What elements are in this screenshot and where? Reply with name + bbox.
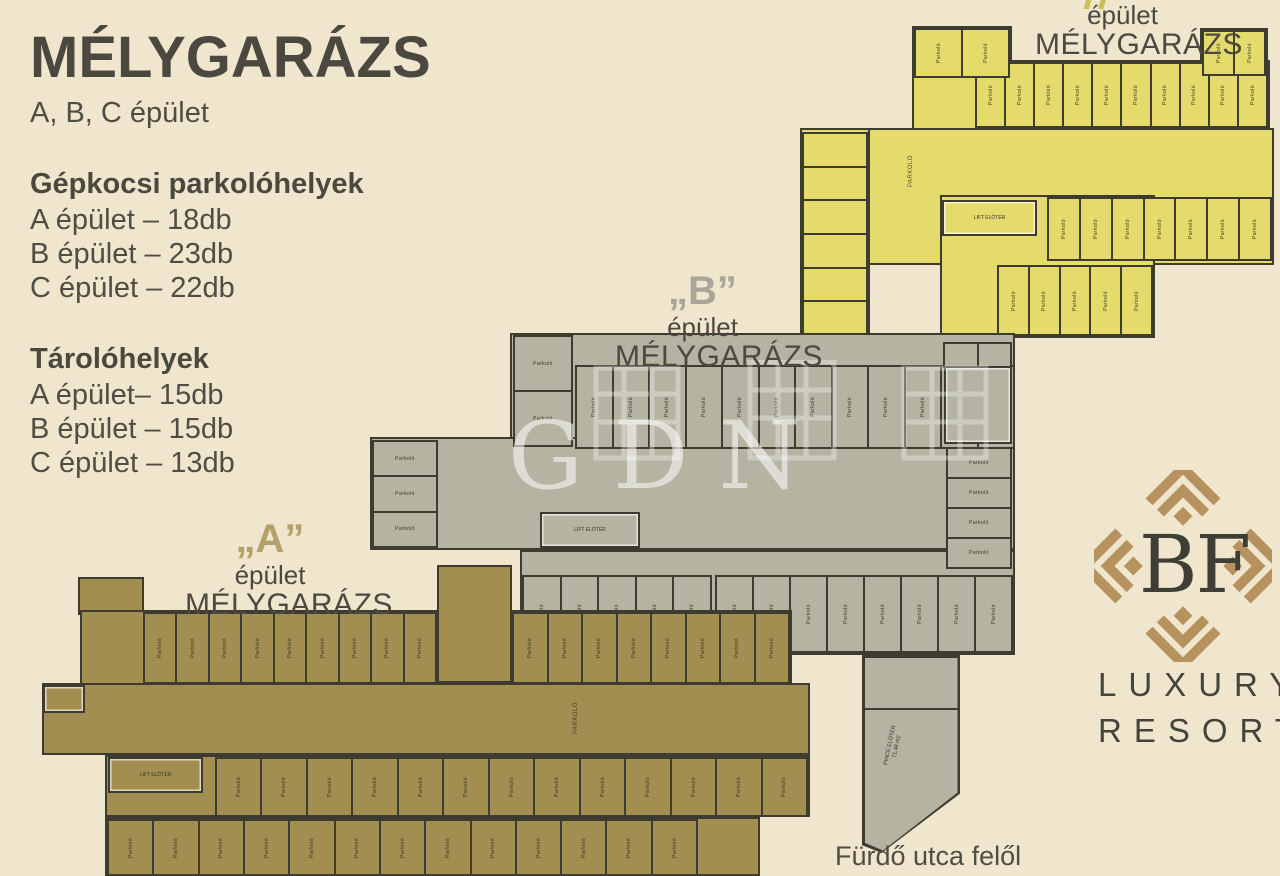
stall-label: Parkoló — [969, 550, 989, 556]
stall-label: Parkoló — [1249, 85, 1255, 105]
stall-label: Parkoló — [327, 777, 333, 797]
stall-label: Parkoló — [1191, 85, 1197, 105]
parking-strip-b: ParkolóParkolóParkolóParkoló — [946, 447, 1012, 569]
parking-stall: Parkoló — [562, 821, 607, 874]
building-b-line2: MÉLYGARÁZS — [615, 341, 790, 373]
parking-stall: Parkoló — [583, 614, 618, 682]
stall-label: Parkoló — [1103, 291, 1109, 311]
storage-list: A épület– 15dbB épület – 15dbC épület – … — [30, 378, 490, 480]
parking-stall: Parkoló — [372, 614, 404, 682]
building-a-line1: épület — [185, 562, 355, 589]
stall-label: Parkoló — [319, 638, 325, 658]
stall-label: Parkoló — [1246, 43, 1252, 63]
stall-label: Parkoló — [309, 838, 315, 858]
stall-label: Parkoló — [173, 838, 179, 858]
subtitle: A, B, C épület — [30, 97, 490, 130]
parking-stall — [804, 168, 866, 202]
parking-stall: Parkoló — [948, 479, 1010, 509]
parking-stall: Parkoló — [1081, 199, 1113, 259]
parking-strip-c — [802, 132, 868, 336]
stall-label: Parkoló — [384, 638, 390, 658]
stall-label: Parkoló — [1252, 219, 1258, 239]
parking-stall — [804, 134, 866, 168]
lift-label: LIFT ELŐTÉR — [974, 215, 1006, 221]
core-room-b: LIFT ELŐTÉR — [540, 512, 640, 548]
stall-label: Parkoló — [400, 838, 406, 858]
stall-label: Parkoló — [599, 777, 605, 797]
parking-stall: Parkoló — [399, 759, 444, 815]
parking-stall: Parkoló — [472, 821, 517, 874]
stall-label: Parkoló — [1010, 291, 1016, 311]
stall-label: Parkoló — [1134, 291, 1140, 311]
parking-stall: Parkoló — [262, 759, 307, 815]
logo-luxury-text: LUXURY — [1098, 666, 1280, 704]
stall-label: Parkoló — [354, 838, 360, 858]
plan-label-building-c: épület MÉLYGARÁZS — [1035, 2, 1210, 61]
parking-strip-a: ParkolóParkolóParkolóParkolóParkolóParko… — [215, 757, 808, 817]
gdn-watermark: GDN — [508, 402, 831, 511]
stall-label: Parkoló — [157, 638, 163, 658]
stall-label: Parkoló — [264, 838, 270, 858]
stall-label: Parkoló — [982, 43, 988, 63]
parking-stall: Parkoló — [308, 759, 353, 815]
info-line: A épület– 15db — [30, 378, 490, 412]
stall-label: Parkoló — [463, 777, 469, 797]
stall-label: Parkoló — [1188, 219, 1194, 239]
parking-stall: Parkoló — [353, 759, 398, 815]
parking-stall: Parkoló — [549, 614, 584, 682]
parking-stall: Parkoló — [939, 577, 976, 651]
stall-label: Parkoló — [190, 638, 196, 658]
parking-stall: Parkoló — [245, 821, 290, 874]
core-room-a: LIFT ELŐTÉR — [108, 757, 203, 793]
parking-stall: Parkoló — [672, 759, 717, 815]
parking-stall: Parkoló — [652, 614, 687, 682]
stall-label: Parkoló — [287, 638, 293, 658]
stall-label: Parkoló — [1072, 291, 1078, 311]
garage-area-a — [437, 565, 512, 683]
parking-stall: Parkoló — [976, 577, 1011, 651]
parking-stall: Parkoló — [1176, 199, 1208, 259]
parking-stall: Parkoló — [275, 614, 307, 682]
parking-stall — [804, 269, 866, 303]
info-line: A épület – 18db — [30, 203, 490, 237]
parking-stall: Parkoló — [200, 821, 245, 874]
parking-strip-c: ParkolóParkolóParkolóParkolóParkoló — [997, 265, 1153, 336]
stall-label: Parkoló — [395, 526, 415, 532]
stall-label: Parkoló — [1061, 219, 1067, 239]
stall-label: Parkoló — [916, 604, 922, 624]
stall-label: Parkoló — [236, 777, 242, 797]
stall-label: Parkoló — [969, 490, 989, 496]
stall-label: Parkoló — [631, 638, 637, 658]
stall-label: Parkoló — [596, 638, 602, 658]
parking-stall: Parkoló — [902, 577, 939, 651]
parking-strip-a: ParkolóParkolóParkolóParkolóParkolóParko… — [107, 819, 698, 876]
parking-stall: Parkoló — [963, 30, 1008, 76]
garage-plan-poster: ParkolóParkolóParkolóParkolóParkolóParko… — [0, 0, 1280, 876]
stall-label: Parkoló — [626, 838, 632, 858]
stall-label: Parkoló — [1157, 219, 1163, 239]
parking-stall: Parkoló — [1035, 64, 1064, 126]
parking-heading: Gépkocsi parkolóhelyek — [30, 168, 490, 201]
building-b-quote: „B” — [615, 270, 790, 312]
parking-stall: Parkoló — [581, 759, 626, 815]
parking-stall: Parkoló — [687, 614, 722, 682]
ramp-label: PINCE ELŐTÉR71,48 m2 — [883, 724, 905, 766]
info-line: B épület – 23db — [30, 237, 490, 271]
parking-stall: Parkoló — [1030, 267, 1061, 334]
stall-label: Parkoló — [781, 777, 787, 797]
stall-label: Parkoló — [990, 604, 996, 624]
stall-label: Parkoló — [1162, 85, 1168, 105]
parking-stall: Parkoló — [1091, 267, 1122, 334]
parking-stall: Parkoló — [1093, 64, 1122, 126]
parking-stall: Parkoló — [618, 614, 653, 682]
parking-stall: Parkoló — [517, 821, 562, 874]
building-b-line1: épület — [615, 314, 790, 341]
cellar-ramp-floor: PINCE ELŐTÉR71,48 m2 — [865, 658, 958, 851]
parking-stall: Parkoló — [535, 759, 580, 815]
stall-label: Parkoló — [372, 777, 378, 797]
stall-label: Parkoló — [1220, 219, 1226, 239]
aisle-label-a: PARKOLÓ — [573, 702, 579, 734]
stall-label: Parkoló — [953, 604, 959, 624]
parking-stall: Parkoló — [177, 614, 209, 682]
core-room-c: LIFT ELŐTÉR — [942, 200, 1037, 236]
info-panel: MÉLYGARÁZS A, B, C épület Gépkocsi parko… — [30, 28, 490, 480]
stall-label: Parkoló — [671, 838, 677, 858]
parking-stall: Parkoló — [307, 614, 339, 682]
stall-label: Parkoló — [935, 43, 941, 63]
parking-stall: Parkoló — [1113, 199, 1145, 259]
parking-stall: Parkoló — [999, 267, 1030, 334]
parking-stall: Parkoló — [1240, 199, 1270, 259]
logo-resort-text: RESORT — [1098, 712, 1280, 750]
parking-stall: Parkoló — [1064, 64, 1093, 126]
stall-label: Parkoló — [769, 638, 775, 658]
stall-label: Parkoló — [509, 777, 515, 797]
stall-label: Parkoló — [700, 638, 706, 658]
info-line: C épület – 22db — [30, 271, 490, 305]
stall-label: Parkoló — [879, 604, 885, 624]
stall-label: Parkoló — [1125, 219, 1131, 239]
lift-label: LIFT ELŐTÉR — [140, 772, 172, 778]
info-line: B épület – 15db — [30, 412, 490, 446]
stall-label: Parkoló — [554, 777, 560, 797]
parking-stall — [804, 235, 866, 269]
parking-stall: Parkoló — [154, 821, 199, 874]
parking-strip-a: ParkolóParkolóParkolóParkolóParkolóParko… — [512, 612, 790, 684]
bf-logo-monogram: BF — [1124, 518, 1264, 611]
parking-stall: Parkoló — [515, 337, 571, 392]
stall-label: Parkoló — [1075, 85, 1081, 105]
parking-stall: Parkoló — [336, 821, 381, 874]
stall-label: Parkoló — [842, 604, 848, 624]
parking-stall: Parkoló — [1145, 199, 1177, 259]
parking-stall: Parkoló — [756, 614, 789, 682]
parking-stall: Parkoló — [948, 539, 1010, 567]
stall-label: Parkoló — [581, 838, 587, 858]
parking-stall: Parkoló — [374, 513, 436, 546]
parking-stall: Parkoló — [916, 30, 963, 76]
building-a-quote: „A” — [185, 518, 355, 560]
lift-label: LIFT ELŐTÉR — [574, 527, 606, 533]
stall-label: Parkoló — [1104, 85, 1110, 105]
stall-label: Parkoló — [562, 638, 568, 658]
stall-label: Parkoló — [1041, 291, 1047, 311]
parking-strip-a: ParkolóParkolóParkolóParkolóParkolóParko… — [143, 612, 437, 684]
garage-area-a — [42, 683, 810, 755]
building-a-line2: MÉLYGARÁZS — [185, 589, 355, 621]
parking-stall — [804, 302, 866, 334]
street-label: Fürdő utca felől — [835, 841, 1021, 872]
stall-label: Parkoló — [1220, 85, 1226, 105]
stall-label: Parkoló — [218, 838, 224, 858]
stall-label: Parkoló — [417, 638, 423, 658]
ramp-divider — [865, 708, 958, 711]
parking-stall: Parkoló — [721, 614, 756, 682]
stall-label: Parkoló — [665, 638, 671, 658]
parking-list: A épület – 18dbB épület – 23dbC épület –… — [30, 203, 490, 305]
cellar-ramp: PINCE ELŐTÉR71,48 m2 — [862, 655, 960, 853]
info-line: C épület – 13db — [30, 446, 490, 480]
parking-stall: Parkoló — [763, 759, 806, 815]
stall-label: Parkoló — [535, 838, 541, 858]
parking-stall: Parkoló — [405, 614, 435, 682]
parking-stall: Parkoló — [1049, 199, 1081, 259]
parking-stall: Parkoló — [381, 821, 426, 874]
page-title: MÉLYGARÁZS — [30, 28, 490, 89]
parking-strip-c: ParkolóParkoló — [914, 28, 1010, 78]
stall-label: Parkoló — [533, 361, 553, 367]
stall-label: Parkoló — [395, 491, 415, 497]
parking-stall: Parkoló — [626, 759, 671, 815]
parking-stall: Parkoló — [1152, 64, 1181, 126]
parking-strip-c: ParkolóParkolóParkolóParkolóParkolóParko… — [1047, 197, 1272, 261]
parking-stall: Parkoló — [791, 577, 828, 651]
stall-label: Parkoló — [969, 520, 989, 526]
building-c-line2: MÉLYGARÁZS — [1035, 29, 1210, 61]
parking-stall: Parkoló — [374, 477, 436, 512]
parking-stall: Parkoló — [514, 614, 549, 682]
core-room-a — [43, 685, 85, 713]
storage-heading: Tárolóhelyek — [30, 343, 490, 376]
stall-label: Parkoló — [805, 604, 811, 624]
parking-stall: Parkoló — [948, 509, 1010, 539]
parking-stall: Parkoló — [490, 759, 535, 815]
stall-label: Parkoló — [490, 838, 496, 858]
parking-stall: Parkoló — [1122, 64, 1151, 126]
plan-label-building-a: „A” épület MÉLYGARÁZS — [185, 518, 355, 621]
parking-stall — [804, 201, 866, 235]
parking-stall: Parkoló — [145, 614, 177, 682]
aisle-label-c: PARKOLÓ — [908, 155, 914, 187]
parking-stall: Parkoló — [653, 821, 696, 874]
stall-label: Parkoló — [734, 638, 740, 658]
stall-label: Parkoló — [418, 777, 424, 797]
parking-stall: Parkoló — [828, 577, 865, 651]
parking-stall: Parkoló — [217, 759, 262, 815]
stall-label: Parkoló — [736, 777, 742, 797]
building-c-line1: épület — [1035, 2, 1210, 29]
stall-label: Parkoló — [1017, 85, 1023, 105]
stall-label: Parkoló — [1046, 85, 1052, 105]
stall-label: Parkoló — [1093, 219, 1099, 239]
parking-stall: Parkoló — [607, 821, 652, 874]
parking-stall: Parkoló — [865, 577, 902, 651]
parking-stall: Parkoló — [1122, 267, 1151, 334]
parking-stall: Parkoló — [340, 614, 372, 682]
stall-label: Parkoló — [527, 638, 533, 658]
stall-label: Parkoló — [352, 638, 358, 658]
parking-stall: Parkoló — [717, 759, 762, 815]
stall-label: Parkoló — [281, 777, 287, 797]
parking-stall: Parkoló — [444, 759, 489, 815]
stall-label: Parkoló — [1133, 85, 1139, 105]
stall-label: Parkoló — [988, 85, 994, 105]
parking-stall: Parkoló — [242, 614, 274, 682]
stall-label: Parkoló — [645, 777, 651, 797]
parking-stall: Parkoló — [1061, 267, 1092, 334]
stall-label: Parkoló — [128, 838, 134, 858]
plan-label-building-b: „B” épület MÉLYGARÁZS — [615, 270, 790, 373]
stall-label: Parkoló — [690, 777, 696, 797]
parking-stall: Parkoló — [1006, 64, 1035, 126]
parking-stall: Parkoló — [109, 821, 154, 874]
parking-stall: Parkoló — [290, 821, 335, 874]
parking-stall: Parkoló — [426, 821, 471, 874]
parking-stall: Parkoló — [210, 614, 242, 682]
stall-label: Parkoló — [222, 638, 228, 658]
stall-label: Parkoló — [445, 838, 451, 858]
stall-label: Parkoló — [255, 638, 261, 658]
parking-stall: Parkoló — [1208, 199, 1240, 259]
